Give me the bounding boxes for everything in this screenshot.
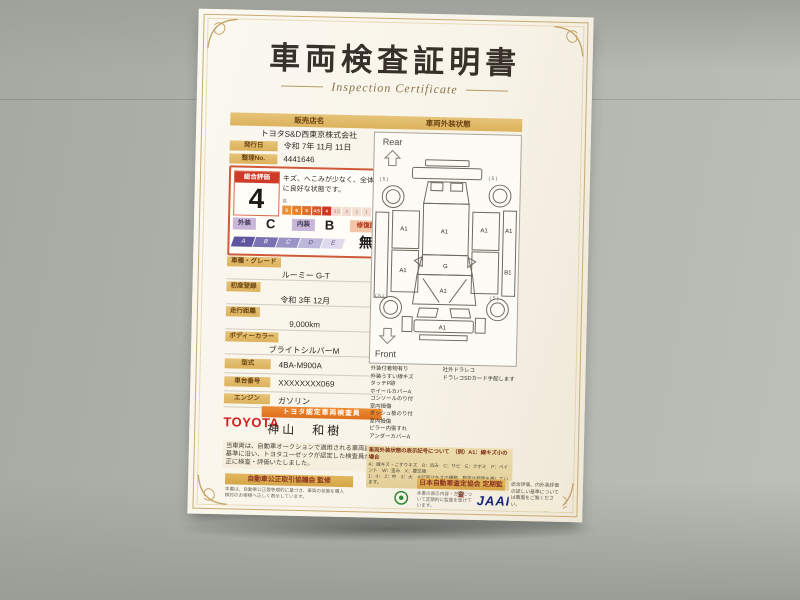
scale-seg: 3.5 [332, 207, 342, 216]
scale-seg: 6 [292, 206, 302, 215]
rear-label: Rear [383, 137, 403, 147]
checklist-left: 外装付着物有り 外装うすい線キズ タッチP跡 ホイールカバーA コンソールのり付… [369, 366, 441, 443]
grade-seg: E [320, 238, 346, 248]
scale-seg: 1 [362, 207, 372, 216]
front-arrow-icon [378, 327, 396, 347]
exterior-diagram-box: Rear [369, 132, 522, 367]
panel-mark-roof: A1 [441, 229, 448, 235]
left-column: 販売店名 トヨタS&D西東京株式会社 発行日令和 7年 11月 11日 整理No… [230, 112, 388, 116]
checklist-item: アンダーカバーA [369, 433, 439, 442]
fair-trade-note: 本書は、自動車公正競争規約に基づき、車両の状態を購入検討のお客様へ正しく表示して… [225, 486, 345, 501]
checklist-right: 社外ドラレコ ドラレコSDカード手配します [442, 367, 516, 384]
panel-mark-windshield: G [443, 264, 448, 270]
panel-mark-front-bumper: A1 [439, 325, 446, 331]
fair-trade-emblem-icon [394, 490, 409, 505]
car-top-view-diagram: ( 5 ) ( 5 ) ( 5 ) ( 5 ) A1 A1 A1 A1 A1 B… [372, 157, 518, 344]
tire-depth-label: ( 5 ) [375, 293, 384, 299]
interior-grade-value: B [325, 218, 335, 233]
scale-seg: 5 [302, 206, 312, 215]
jaai-note: 本書の表示内容・方法について定期的に監査を受けています。 [416, 491, 472, 510]
front-label: Front [375, 349, 396, 359]
ref-no-label: 整理No. [229, 153, 277, 164]
field-label-grade: 車種・グレード [227, 256, 281, 267]
footer: 自動車公正取引協議会 監修 本書は、自動車公正競争規約に基づき、車両の状態を購入… [224, 473, 620, 522]
grade-scale-bar: A B C D E [231, 236, 346, 248]
scale-seg: S [282, 206, 292, 215]
scale-seg: 4 [322, 206, 332, 215]
disclaimer-text: 当車両は、自動車オークションで適用される車両評価基準に沿い、トヨタユーゼックが認… [222, 440, 381, 472]
fair-trade-council-banner: 自動車公正取引協議会 監修 [225, 473, 353, 487]
inspector-box: トヨタ認定車両検査員 TOYOTA 神山 和樹 [223, 405, 382, 439]
certificate-title: 車両検査証明書 [197, 31, 593, 85]
scale-seg: 4.5 [312, 206, 322, 215]
field-label-body-color: ボディーカラー [225, 331, 278, 342]
issue-date-row: 発行日令和 7年 11月 11日 [230, 139, 352, 153]
subtitle-text: Inspection Certificate [331, 80, 458, 98]
seller-header: 販売店名 [230, 112, 388, 129]
scale-seg: 2 [352, 207, 362, 216]
panel-mark-right-skirt: A1 [505, 229, 512, 235]
field-value-engine: ガソリン [278, 395, 310, 407]
issue-date-label: 発行日 [230, 140, 278, 151]
tire-depth-label: ( 5 ) [380, 176, 389, 182]
ref-no-row: 整理No.4441646 [229, 152, 314, 165]
jaai-logo: JAAI [477, 493, 511, 509]
score-scale-bar: S 6 5 4.5 4 3.5 3 2 1 R/W [282, 206, 382, 217]
checklist-item: ドラレコSDカード手配します [442, 375, 516, 384]
interior-grade-label: 内装 [292, 219, 315, 232]
tire-depth-label: ( 5 ) [490, 296, 499, 302]
issue-date-value: 令和 7年 11月 11日 [284, 141, 352, 154]
overall-score-value: 4 [234, 182, 279, 214]
ref-no-value: 4441646 [283, 154, 314, 166]
field-label-mileage: 走行距離 [226, 306, 260, 317]
reverse-side-note: 総合評価、内外装評価の詳しい基準については裏面をご覧ください。 [508, 481, 563, 512]
panel-mark-right-door-front: A1 [480, 228, 487, 234]
overall-score-cell: 総合評価 4 [233, 170, 280, 216]
exterior-grade-label: 外装 [233, 217, 256, 230]
field-value-chassis-no: XXXXXXXX069 [278, 378, 334, 388]
evaluation-comment: キズ、へこみが少なく、全体的に良好な状態です。 [283, 175, 383, 196]
field-label-engine: エンジン [224, 393, 270, 404]
scale-seg: 3 [342, 207, 352, 216]
tire-depth-label: ( 5 ) [488, 176, 497, 182]
inspector-banner: トヨタ認定車両検査員 [262, 406, 382, 420]
exterior-grade-value: C [266, 216, 276, 231]
field-value-model-code: 4BA-M900A [279, 360, 322, 370]
inspector-name: 神山 和樹 [267, 420, 342, 439]
field-label-model-code: 型式 [225, 358, 271, 369]
field-label-first-reg: 初度登録 [226, 281, 260, 292]
right-column: 車両外装状態 Rear [374, 116, 522, 119]
scale-high-label: 高 [282, 199, 287, 204]
overall-evaluation-box: 総合評価 4 キズ、へこみが少なく、全体的に良好な状態です。 高 低 S 6 5… [227, 165, 389, 259]
panel-mark-left-door-front: A1 [400, 226, 407, 232]
panel-mark-left-door-rear: A1 [399, 268, 406, 274]
panel-mark-right-skirt-lower: B1 [504, 270, 511, 276]
field-label-chassis-no: 車台番号 [224, 376, 270, 387]
jaai-banner: 日本自動車査定協会 定期監査 [417, 478, 505, 491]
certificate-sheet: 車両検査証明書 Inspection Certificate 販売店名 トヨタS… [187, 9, 593, 523]
exterior-header: 車両外装状態 [374, 116, 522, 132]
panel-mark-hood: A1 [439, 289, 446, 295]
